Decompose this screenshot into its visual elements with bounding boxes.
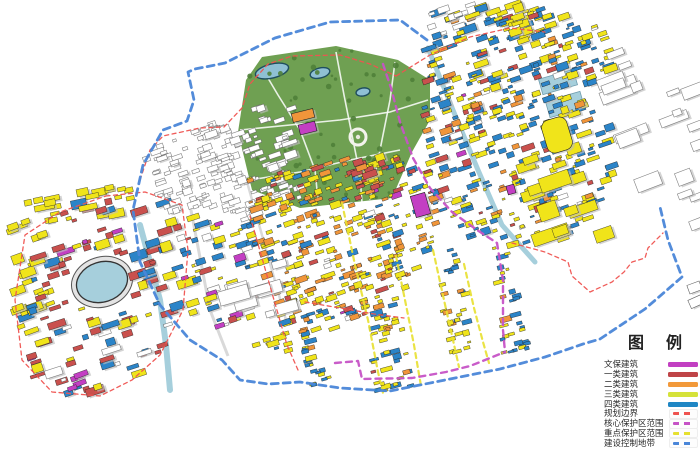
legend-item-key-protection-area: 重点保护区范围 bbox=[604, 429, 698, 439]
legend-title: 图 例 bbox=[628, 329, 698, 353]
legend-label: 建设控制地带 bbox=[604, 439, 666, 448]
legend-item-class2: 二类建筑 bbox=[604, 380, 698, 390]
legend-label: 一类建筑 bbox=[604, 370, 666, 379]
construction-control-swatch bbox=[669, 438, 698, 448]
planning-boundary-swatch bbox=[669, 409, 698, 419]
heritage-swatch bbox=[668, 362, 698, 367]
legend-item-class3: 三类建筑 bbox=[604, 389, 698, 399]
core-protection-swatch bbox=[669, 419, 698, 429]
legend-label: 四类建筑 bbox=[604, 400, 666, 409]
class4-swatch bbox=[668, 402, 698, 407]
class1-swatch bbox=[668, 372, 698, 377]
class3-swatch bbox=[668, 392, 698, 397]
legend-item-construction-control-zone: 建设控制地带 bbox=[604, 438, 698, 448]
urban-plan-figure: 图 例 文保建筑 一类建筑 二类建筑 三类建筑 四类建筑 规划边界 核心保护区范… bbox=[0, 0, 700, 458]
legend-label: 二类建筑 bbox=[604, 380, 666, 389]
key-protection-swatch bbox=[669, 428, 698, 438]
legend-label: 三类建筑 bbox=[604, 390, 666, 399]
axonometric-city-map bbox=[0, 0, 700, 458]
legend-label: 核心保护区范围 bbox=[604, 419, 666, 428]
legend-label: 规划边界 bbox=[604, 409, 666, 418]
legend-panel: 图 例 文保建筑 一类建筑 二类建筑 三类建筑 四类建筑 规划边界 核心保护区范… bbox=[604, 329, 698, 448]
legend-label: 文保建筑 bbox=[604, 360, 666, 369]
class2-swatch bbox=[668, 382, 698, 387]
legend-label: 重点保护区范围 bbox=[604, 429, 666, 438]
